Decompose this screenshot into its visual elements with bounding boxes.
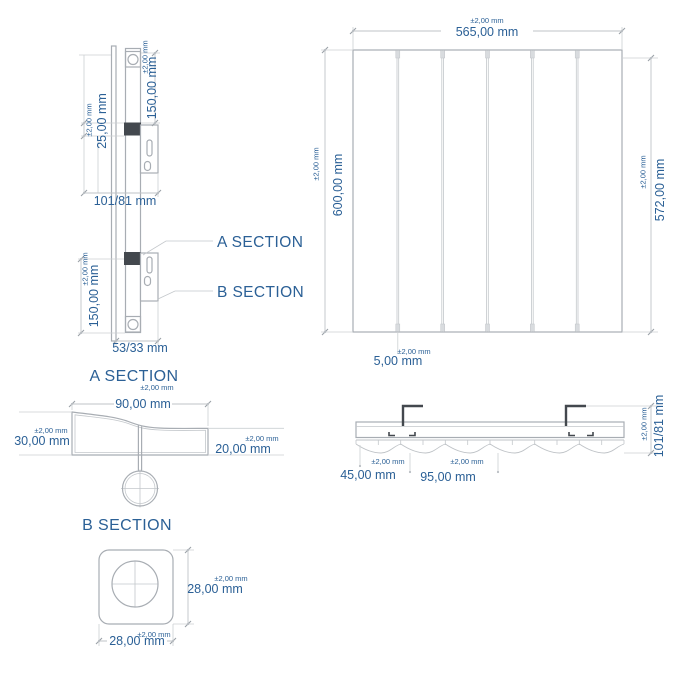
height-tolerance: ±2,00 mm [312, 147, 321, 180]
depth-top-value: 101/81 mm [94, 194, 157, 208]
section-b-height-value: 28,00 mm [187, 582, 243, 596]
bracket-spacing-value: 95,00 mm [420, 470, 476, 484]
tube-crosshair [121, 470, 159, 508]
top-height-value: 150,00 mm [145, 57, 159, 120]
left-height-value: 30,00 mm [14, 434, 70, 448]
technical-drawing-sheet: ±2,00 mm 150,00 mm ±2,00 mm 25,00 mm 101… [0, 0, 700, 700]
b-section-label: B SECTION [217, 284, 304, 301]
depth-bottom-value: 53/33 mm [112, 341, 168, 355]
bracket-offset-value: 45,00 mm [340, 468, 396, 482]
depth-tolerance: ±2,00 mm [640, 407, 649, 440]
gap-value: 5,00 mm [374, 354, 423, 368]
section-b-title: B SECTION [82, 517, 172, 534]
slat-profile-outer [72, 412, 208, 455]
section-b-detail: B SECTION ±2,00 mm 28,00 mm ±2,00 mm 28,… [82, 517, 248, 648]
bottom-height-value: 150,00 mm [87, 265, 101, 328]
top-rail [356, 422, 624, 438]
depth-value: 101/81 mm [652, 395, 666, 458]
upper-bracket [124, 123, 141, 136]
upper-wall-plate [141, 125, 159, 173]
right-height-value: 20,00 mm [215, 442, 271, 456]
slat-band-wave-edge [356, 444, 624, 453]
radiator-drawing-canvas: ±2,00 mm 150,00 mm ±2,00 mm 25,00 mm 101… [0, 0, 700, 700]
height-value: 600,00 mm [331, 154, 345, 217]
bracket-height-tolerance: ±2,00 mm [85, 103, 94, 136]
side-view: ±2,00 mm 150,00 mm ±2,00 mm 25,00 mm 101… [78, 40, 304, 355]
front-view: ±2,00 mm 565,00 mm ±2,00 mm 600,00 mm ±2… [312, 16, 668, 368]
section-b-width-value: 28,00 mm [109, 634, 165, 648]
section-a-width-value: 90,00 mm [115, 397, 171, 411]
lower-bracket [124, 252, 141, 265]
width-value: 565,00 mm [456, 25, 519, 39]
bracket-offset-tolerance: ±2,00 mm [371, 457, 404, 466]
a-section-label: A SECTION [217, 234, 303, 251]
b-section-leader-line [158, 291, 213, 299]
panel-outline [353, 50, 622, 332]
inner-height-value: 572,00 mm [653, 159, 667, 222]
top-view: ±2,00 mm 101/81 mm ±2,00 mm 45,00 mm ±2,… [340, 395, 666, 484]
width-tolerance: ±2,00 mm [470, 16, 503, 25]
section-a-width-tolerance: ±2,00 mm [140, 383, 173, 392]
section-a-detail: A SECTION ±2,00 mm 90,00 mm ±2,00 mm 30,… [14, 368, 284, 508]
inner-height-tolerance: ±2,00 mm [639, 155, 648, 188]
bracket-spacing-tolerance: ±2,00 mm [450, 457, 483, 466]
collector-column [126, 49, 141, 333]
bracket-height-value: 25,00 mm [95, 93, 109, 149]
